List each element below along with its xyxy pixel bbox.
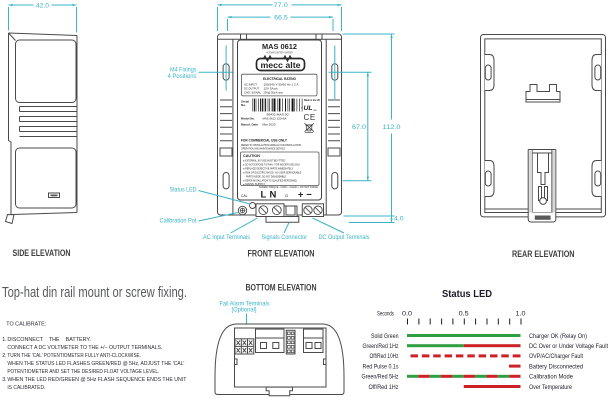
svg-text:Model No.: Model No. xyxy=(241,117,255,121)
svg-text:CHG. SIGNAL: CHG. SIGNAL xyxy=(244,90,261,94)
svg-text:[Optional]: [Optional] xyxy=(232,307,257,313)
svg-text:OVP/AC/Charger Fault: OVP/AC/Charger Fault xyxy=(529,354,583,360)
svg-text:Status LED: Status LED xyxy=(442,288,492,300)
svg-text:FOR COMMERCIAL USE ONLY: FOR COMMERCIAL USE ONLY xyxy=(241,139,288,143)
svg-text:WHEN THE LED RED/GREEN @ 5Hz F: WHEN THE LED RED/GREEN @ 5Hz FLASH SEQUE… xyxy=(7,377,187,383)
svg-text:1.0: 1.0 xyxy=(516,312,527,318)
svg-text:Off/Red 1Hz: Off/Red 1Hz xyxy=(369,385,399,391)
svg-text:3.: 3. xyxy=(2,377,7,383)
svg-text:Manuf. Date: Manuf. Date xyxy=(241,123,258,127)
svg-text:● EXTERNAL 30 FUSE MUST BE FIT: ● EXTERNAL 30 FUSE MUST BE FITTED xyxy=(243,160,285,163)
svg-text:MAS 0612 120+6A: MAS 0612 120+6A xyxy=(263,117,287,121)
svg-text:Seconds: Seconds xyxy=(377,312,394,318)
svg-text:CAUTION: CAUTION xyxy=(243,153,260,158)
svg-text:TO CALIBRATE:: TO CALIBRATE: xyxy=(6,321,46,327)
svg-text:● DO NOT EXPOSE TO RAIN - FOR: ● DO NOT EXPOSE TO RAIN - FOR INDOOR USE… xyxy=(243,164,301,167)
svg-text:DC Over or Under Voltage Fault: DC Over or Under Voltage Fault xyxy=(529,344,608,350)
svg-text:66.5: 66.5 xyxy=(274,15,288,22)
svg-text:+: + xyxy=(298,189,304,200)
svg-text:42.0: 42.0 xyxy=(36,3,49,10)
svg-text:4 Positions: 4 Positions xyxy=(168,74,197,80)
svg-text:112.0: 112.0 xyxy=(383,124,401,131)
svg-text:Red Pulse 0.1s: Red Pulse 0.1s xyxy=(363,364,399,370)
svg-text:WHEN THE STATUS LED FLASHES GR: WHEN THE STATUS LED FLASHES GREEN/RED @ … xyxy=(7,361,184,367)
svg-text:Green/Red 5Hz: Green/Red 5Hz xyxy=(362,375,399,381)
svg-text:SIDE ELEVATION: SIDE ELEVATION xyxy=(13,248,71,259)
svg-text:CE: CE xyxy=(304,113,316,122)
svg-text:POTENTIOMETER AND SET THE DESI: POTENTIOMETER AND SET THE DESIRED FLOAT … xyxy=(7,369,159,375)
svg-text:M4 Fixings: M4 Fixings xyxy=(170,68,197,74)
svg-text:20V@ 50mA max.: 20V@ 50mA max. xyxy=(264,90,284,94)
svg-text:1.: 1. xyxy=(2,337,7,343)
svg-text:● RISK OF ELECTRIC SHOCK, NO U: ● RISK OF ELECTRIC SHOCK, NO USER SERVIC… xyxy=(243,172,302,175)
svg-text:REAR ELEVATION: REAR ELEVATION xyxy=(512,249,575,260)
svg-text:TURN THE 'CAL' POTENTIOMETER F: TURN THE 'CAL' POTENTIOMETER FULLY ANTI-… xyxy=(7,353,141,359)
svg-text:CI: CI xyxy=(285,194,289,198)
svg-text:AC Input Terminals: AC Input Terminals xyxy=(203,235,250,241)
svg-text:CONNECT A DC VOLTMETER TO THE: CONNECT A DC VOLTMETER TO THE +/− OUTPUT… xyxy=(7,345,162,351)
svg-text:IS CALIBRATED.: IS CALIBRATED. xyxy=(7,385,45,391)
svg-text:FRONT ELEVATION: FRONT ELEVATION xyxy=(248,249,315,260)
svg-text:Mar 2020: Mar 2020 xyxy=(263,123,276,127)
svg-text:mecc alte: mecc alte xyxy=(261,61,302,70)
svg-text:Green/Red 1Hz: Green/Red 1Hz xyxy=(363,344,399,350)
svg-text:Solid Green: Solid Green xyxy=(371,334,399,340)
svg-text:REFER TO INSTALLATION MANUAL F: REFER TO INSTALLATION MANUAL FOR INSTALL… xyxy=(241,143,301,147)
svg-text:ELECTRICAL RATING: ELECTRICAL RATING xyxy=(263,77,296,81)
svg-text:Battery Disconnected: Battery Disconnected xyxy=(529,364,583,370)
svg-text:MAS 0612: MAS 0612 xyxy=(262,44,297,51)
svg-text:us: us xyxy=(313,108,317,112)
svg-text:Made in the UK: Made in the UK xyxy=(304,98,320,102)
svg-text:Charger OK (Relay On): Charger OK (Relay On) xyxy=(529,334,587,340)
svg-text:No.: No. xyxy=(241,103,246,107)
svg-text:0.0: 0.0 xyxy=(402,312,413,318)
svg-text:Status LED: Status LED xyxy=(170,188,198,194)
svg-text:Calibration Pot: Calibration Pot xyxy=(160,219,197,225)
svg-text:UL: UL xyxy=(304,105,313,112)
svg-text:Off/Red 10Hz: Off/Red 10Hz xyxy=(370,354,399,360)
svg-text:OPERATION AND MAINTENANCE DETA: OPERATION AND MAINTENANCE DETAILS xyxy=(241,147,285,151)
svg-text:Over Temperature: Over Temperature xyxy=(529,385,573,391)
svg-text:AUTOMATIC BATTERY CHARGER: AUTOMATIC BATTERY CHARGER xyxy=(267,50,293,54)
svg-text:67.0: 67.0 xyxy=(352,124,366,131)
svg-text:Top-hat din rail mount or scre: Top-hat din rail mount or screw fixing. xyxy=(2,284,187,301)
svg-text:4.0: 4.0 xyxy=(394,216,404,223)
svg-text:−: − xyxy=(306,189,312,200)
svg-text:PARTS INSIDE, DO NOT DISASSEMB: PARTS INSIDE, DO NOT DISASSEMBLE xyxy=(246,176,286,179)
svg-text:CAL: CAL xyxy=(241,193,248,198)
svg-text:DISCONNECT THE BATTERY.: DISCONNECT THE BATTERY. xyxy=(7,337,90,343)
svg-text:Signals Connector: Signals Connector xyxy=(262,235,308,241)
svg-text:L: L xyxy=(261,190,267,201)
svg-text:77.0: 77.0 xyxy=(274,2,289,9)
svg-text:DC Output Terminals: DC Output Terminals xyxy=(319,235,370,241)
svg-text:BOTTOM ELEVATION: BOTTOM ELEVATION xyxy=(246,283,317,294)
svg-text:0.5: 0.5 xyxy=(459,312,470,318)
svg-text:● REPLACE DEFECTIVE PARTS IMME: ● REPLACE DEFECTIVE PARTS IMMEDIATELY xyxy=(243,168,294,171)
svg-text:Calibration Mode: Calibration Mode xyxy=(529,375,574,381)
svg-text:N: N xyxy=(270,190,277,201)
svg-text:2.: 2. xyxy=(2,353,7,359)
